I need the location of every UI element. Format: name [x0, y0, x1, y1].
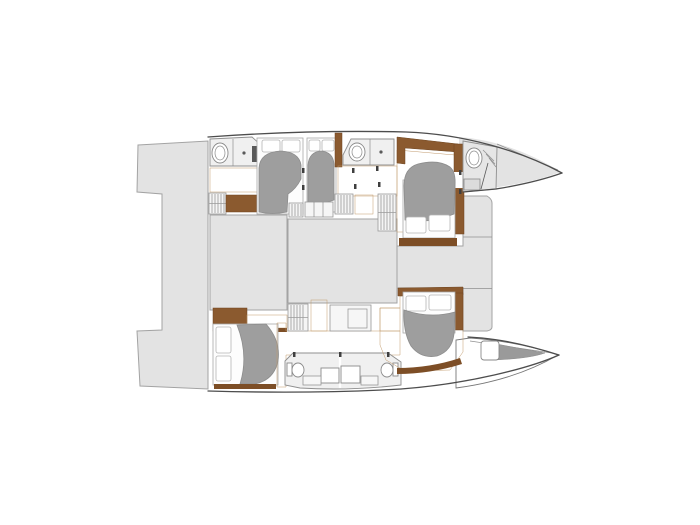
saloon-block [210, 215, 287, 310]
pillow [282, 140, 300, 152]
cabin-head-wall [397, 137, 458, 164]
cabin-foot-wall [399, 238, 457, 246]
stbd-twin-bathrooms [285, 353, 401, 389]
shower-drain-icon [379, 150, 382, 153]
pillow [262, 140, 280, 152]
toilet-tank [287, 363, 292, 376]
port-mid-wall [335, 133, 342, 167]
port-band-wood [355, 195, 373, 214]
bed-foot-wall [214, 384, 276, 389]
pillow [309, 140, 320, 151]
pillow [429, 295, 451, 310]
port-aft-bathroom [210, 137, 262, 166]
port-forward-cabin [397, 137, 464, 246]
cockpit-block [288, 219, 397, 303]
sink-counter [464, 179, 480, 190]
cabin-hull-wall [397, 358, 462, 374]
pillow [429, 215, 450, 231]
bath-counter [361, 376, 378, 385]
pillow [406, 296, 426, 311]
port-aft-cabinet [226, 195, 258, 212]
duvet [404, 310, 455, 357]
stbd-aft-cabin-bed [213, 324, 279, 389]
stbd-galley-unit [330, 305, 371, 331]
stbd-band-wood [311, 300, 327, 331]
pillow [406, 217, 426, 233]
bath-counter [303, 376, 321, 385]
aft-platform [137, 141, 208, 389]
stbd-band-wood-fwd [380, 308, 400, 331]
port-band-steps [289, 203, 303, 217]
toilet-icon [381, 363, 393, 377]
port-band-cabinet [305, 202, 333, 217]
shower-drain-icon [242, 151, 245, 154]
pillow [216, 356, 231, 381]
catamaran-floorplan [0, 0, 700, 525]
port-mid-steps [335, 194, 353, 214]
port-aft-steps [209, 193, 226, 214]
pillow [322, 140, 334, 151]
port-forward-steps [378, 194, 396, 231]
port-mid-bathroom [343, 139, 394, 165]
toilet-icon [292, 363, 304, 377]
port-aft-wood-floor [210, 168, 262, 192]
duvet [308, 151, 334, 203]
starboard-bow-deck [456, 338, 558, 388]
port-bow-bathroom [463, 141, 497, 192]
duvet [404, 162, 455, 221]
stbd-companionway-steps [288, 304, 308, 331]
vanity [341, 366, 360, 383]
bow-hatch-icon [481, 341, 499, 360]
vanity [321, 368, 339, 383]
port-mid-cabin-bed [307, 138, 336, 212]
pillow [216, 327, 231, 353]
floorplan-stage [0, 0, 700, 525]
port-corridor-wood [338, 166, 397, 196]
